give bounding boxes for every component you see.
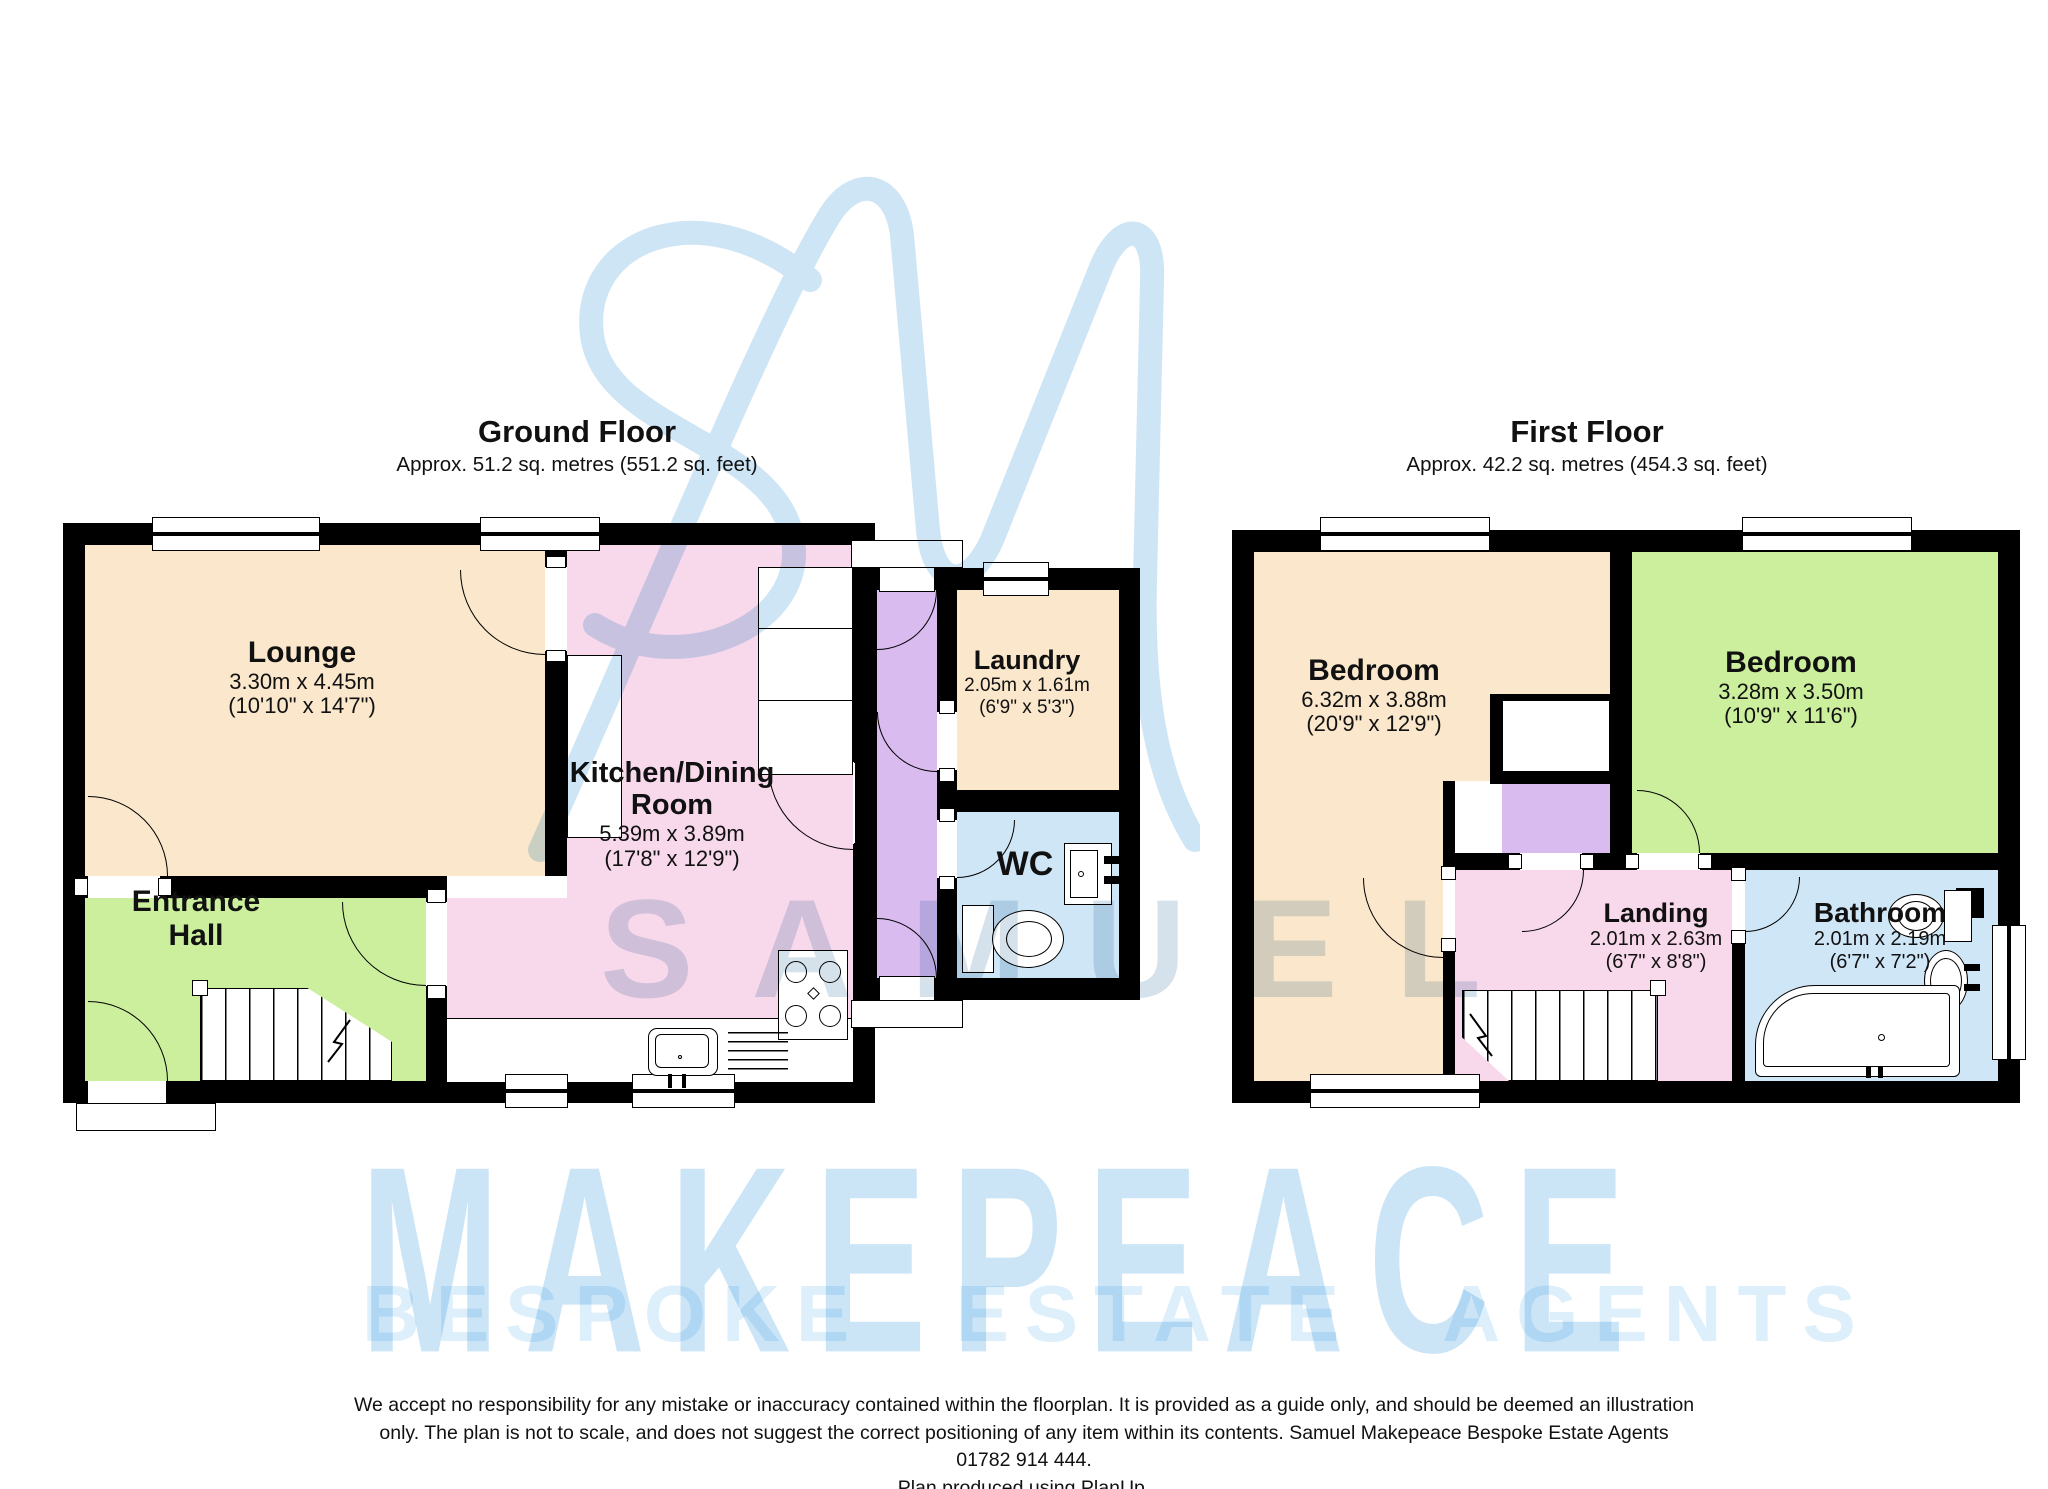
tap-icon — [1964, 964, 1980, 971]
label-entrance-hall: Entrance Hall — [132, 885, 260, 952]
label-bedroom-2: Bedroom 3.28m x 3.50m (10'9" x 11'6") — [1718, 646, 1864, 729]
door-jamb — [939, 768, 955, 782]
tap-icon — [1964, 984, 1980, 991]
window — [983, 562, 1049, 596]
door-jamb — [939, 876, 955, 890]
tap-icon — [1878, 1066, 1883, 1078]
wash-basin — [1064, 843, 1112, 905]
door-sill — [851, 1000, 963, 1028]
wall-corridor — [937, 590, 957, 978]
tap-icon — [1866, 1066, 1871, 1078]
cupboard — [1502, 784, 1610, 858]
door-opening — [545, 567, 567, 651]
door-opening — [1637, 853, 1700, 870]
door-jamb — [939, 700, 955, 714]
wall-laundry-wc — [937, 790, 1119, 812]
door-opening — [937, 820, 957, 878]
disclaimer-line: Plan produced using PlanUp. — [0, 1475, 2048, 1489]
ground-floor-title: Ground Floor — [396, 414, 757, 450]
door-jamb — [1731, 867, 1746, 881]
door-jamb — [427, 889, 446, 903]
label-kitchen-dining: Kitchen/Dining Room 5.39m x 3.89m (17'8"… — [570, 757, 775, 871]
bathtub — [1755, 985, 1960, 1077]
wall-bedrooms — [1610, 530, 1632, 853]
wall-alcove-top — [1490, 694, 1622, 700]
door-jamb — [1441, 938, 1456, 952]
door-jamb — [1508, 854, 1522, 869]
window — [1310, 1074, 1480, 1108]
disclaimer-line: only. The plan is not to scale, and does… — [0, 1420, 2048, 1448]
label-bathroom: Bathroom 2.01m x 2.19m (6'7" x 7'2") — [1814, 897, 1946, 973]
stairs-direction-arrow — [326, 1018, 356, 1064]
newel-post — [192, 980, 208, 996]
door-jamb — [74, 878, 88, 896]
door-opening — [937, 712, 957, 770]
door-jamb — [1580, 854, 1594, 869]
door-opening — [1443, 878, 1455, 940]
first-floor-title: First Floor — [1406, 414, 1767, 450]
tap-icon — [1104, 856, 1122, 864]
label-lounge: Lounge 3.30m x 4.45m (10'10" x 14'7") — [228, 636, 376, 719]
door-jamb — [1731, 930, 1746, 944]
room-kitchen-dining-extension — [447, 898, 567, 1018]
first-floor-title-block: First Floor Approx. 42.2 sq. metres (454… — [1406, 414, 1767, 477]
stairs-direction-arrow — [1468, 1012, 1498, 1058]
door-jamb — [546, 556, 566, 568]
door-jamb — [546, 650, 566, 662]
door-jamb — [1441, 866, 1456, 880]
door-opening — [1732, 880, 1745, 932]
door-jamb — [1698, 854, 1712, 869]
door-leaf — [879, 976, 935, 1002]
hob — [778, 950, 848, 1040]
front-door-opening — [88, 1081, 166, 1103]
window — [1742, 517, 1912, 551]
door-jamb — [939, 808, 955, 822]
door-jamb — [427, 985, 446, 999]
toilet-bowl — [1006, 921, 1052, 957]
door-opening — [1520, 853, 1582, 870]
label-landing: Landing 2.01m x 2.63m (6'7" x 8'8") — [1590, 898, 1722, 973]
disclaimer-line: We accept no responsibility for any mist… — [0, 1392, 2048, 1420]
alcove — [1502, 700, 1610, 772]
drainer-lines — [728, 1032, 788, 1072]
kitchen-sink — [648, 1028, 718, 1076]
label-laundry: Laundry 2.05m x 1.61m (6'9" x 5'3") — [964, 645, 1090, 718]
tap-icon — [668, 1074, 672, 1088]
door-sill — [851, 540, 963, 568]
window — [152, 517, 320, 551]
tap-icon — [682, 1074, 686, 1088]
window — [480, 517, 600, 551]
watermark-makepeace: MAKEPEACE — [360, 1108, 1649, 1413]
disclaimer-line: 01782 914 444. — [0, 1447, 2048, 1475]
newel-post — [1650, 980, 1666, 996]
ground-floor-title-block: Ground Floor Approx. 51.2 sq. metres (55… — [396, 414, 757, 477]
wall-cupboard-top — [1490, 772, 1622, 784]
ground-floor-area: Approx. 51.2 sq. metres (551.2 sq. feet) — [396, 453, 757, 477]
wall-alcove — [1490, 694, 1502, 784]
door-opening — [426, 902, 447, 986]
label-bedroom-1: Bedroom 6.32m x 3.88m (20'9" x 12'9") — [1301, 654, 1447, 737]
floorplan-page: Ground Floor Approx. 51.2 sq. metres (55… — [0, 0, 2048, 1489]
door-leaf — [879, 566, 935, 592]
disclaimer: We accept no responsibility for any mist… — [0, 1392, 2048, 1489]
door-jamb — [1625, 854, 1639, 869]
watermark-tagline: BESPOKE ESTATE AGENTS — [362, 1268, 1872, 1360]
label-wc: WC — [997, 845, 1054, 883]
window — [1320, 517, 1490, 551]
window — [505, 1074, 568, 1108]
first-floor-area: Approx. 42.2 sq. metres (454.3 sq. feet) — [1406, 453, 1767, 477]
tap-icon — [1104, 876, 1122, 884]
front-door-sill — [76, 1103, 216, 1131]
toilet-cistern — [1944, 890, 1972, 942]
toilet-cistern — [962, 905, 994, 973]
kitchen-unit — [758, 567, 853, 775]
window — [1992, 925, 2026, 1060]
